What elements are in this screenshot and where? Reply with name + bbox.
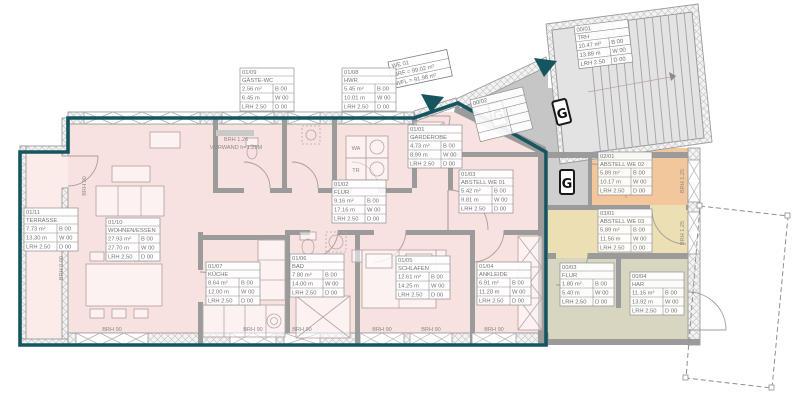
room-height: LRH 2.50 <box>292 291 317 297</box>
room-area: 9.16 m² <box>334 199 354 205</box>
room-height: LRH 2.50 <box>26 245 51 251</box>
we01-area-tag: WE 01 NRF = 99.02 m² WFL = 91.98 m² <box>388 50 452 89</box>
room-name: ABSTELL WE 02 <box>600 162 644 168</box>
brh-label-east-2: BRH 1.25 <box>680 221 686 245</box>
floorplan-svg: G G G WE 01 NRF = 99.02 m² WFL = 91.98 m… <box>0 0 801 400</box>
room-table-trh: 00/01TRH10.47 m²B 0013.89 mW 00LRH 2.50D… <box>574 19 633 68</box>
room-height: LRH 2.50 <box>479 299 504 305</box>
room-height: LRH 2.50 <box>410 162 435 168</box>
room-floor-code: B 00 <box>512 281 524 287</box>
room-floor-code: B 00 <box>494 189 506 195</box>
room-floor-code: B 00 <box>275 87 287 93</box>
room-name: GÄSTE-WC <box>242 77 273 84</box>
room-floor-code: B 00 <box>325 273 337 279</box>
room-name: KÜCHE <box>208 271 228 278</box>
room-code: 01/10 <box>108 220 123 226</box>
brh-label-south-4: BRH 90 <box>372 327 392 333</box>
room-code: 01/02 <box>334 182 349 188</box>
room-wall-code: W 00 <box>367 208 381 214</box>
room-floor-code: B 00 <box>59 227 71 233</box>
room-wall-code: W 00 <box>431 284 445 290</box>
room-name: TERRASSE <box>26 218 57 224</box>
room-code: 00/03 <box>562 265 577 271</box>
wall-we03-service-a <box>548 253 556 259</box>
room-table-garderobe: 01/01GARDEROBE4.73 m²B 008.99 mW 00LRH 2… <box>408 125 462 168</box>
vorwand-label-1: BRH 1.26 <box>224 137 248 143</box>
room-wall-code: W 00 <box>325 282 339 288</box>
brh-label-south-1: BRH 90 <box>102 327 122 333</box>
room-ceiling-code: D 00 <box>377 105 389 111</box>
room-area: 27.93 m² <box>108 237 131 243</box>
wall-kitchen-bad <box>285 230 290 345</box>
room-area: 5.45 m² <box>344 87 364 93</box>
room-floor-code: B 00 <box>443 144 455 150</box>
room-area: 7.80 m² <box>292 273 312 279</box>
room-height: LRH 2.50 <box>242 105 267 111</box>
room-table-gaeste-wc: 01/09GÄSTE-WC2.56 m²B 006.45 mW 00LRH 2.… <box>240 68 294 111</box>
window-we03-east <box>688 212 700 254</box>
room-code: 00/04 <box>632 274 647 280</box>
room-area: 6.91 m² <box>479 281 499 287</box>
room-perimeter: 9.81 m <box>461 198 479 204</box>
room-floor-code: B 00 <box>377 87 389 93</box>
room-perimeter: 10.17 m <box>600 180 621 186</box>
room-height: LRH 2.50 <box>208 299 233 305</box>
room-table-ankleide: 01/04ANKLEIDE6.91 m²B 0011.20 mW 00LRH 2… <box>477 262 531 305</box>
room-area: 12.61 m² <box>398 275 421 281</box>
room-area: 4.73 m² <box>410 144 430 150</box>
wall-corridor-south-c <box>406 230 472 235</box>
room-ceiling-code: D 00 <box>443 162 455 168</box>
room-code: 02/01 <box>600 154 615 160</box>
room-table-har: 00/04HAR11.15 m²B 0013.92 mW 00LRH 2.50D… <box>630 272 684 315</box>
room-ceiling-code: D 00 <box>241 299 253 305</box>
room-ceiling-code: D 00 <box>633 246 645 252</box>
wall-du-hwr <box>332 118 337 188</box>
wall-wc-du <box>282 118 287 188</box>
room-wall-code: W 00 <box>633 180 647 186</box>
room-floor-code: B 00 <box>633 228 645 234</box>
room-wall-code: W 00 <box>512 290 526 296</box>
wall-schlafen-ankleide <box>470 230 475 345</box>
brh-label-south-3: BRH 90 <box>292 327 312 333</box>
room-code: 01/06 <box>292 256 307 262</box>
wall-flur-har <box>616 258 621 308</box>
room-ceiling-code: D 00 <box>141 255 153 261</box>
room-code: 01/07 <box>208 264 223 270</box>
room-area: 8.64 m² <box>208 281 228 287</box>
window-we02-east <box>688 160 700 202</box>
room-floor-code: B 00 <box>241 281 253 287</box>
room-ceiling-code: D 00 <box>633 189 645 195</box>
room-area: 2.56 m² <box>242 87 262 93</box>
room-name: ABSTELL WE 03 <box>600 219 644 225</box>
room-table-flur-00-03: 00/03FLUR1.80 m²B 005.40 mW 00LRH 2.50D … <box>560 263 614 306</box>
room-area: 1.80 m² <box>562 282 582 288</box>
room-table-schlafen: 01/05SCHLAFEN12.61 m²B 0014.25 mW 00LRH … <box>396 256 450 299</box>
room-table-abstell-we02: 02/01ABSTELL WE 025.89 m²B 0010.17 mW 00… <box>598 152 652 195</box>
room-height: LRH 2.50 <box>398 293 423 299</box>
room-ceiling-code: D 00 <box>431 293 443 299</box>
room-table-kueche: 01/07KÜCHE8.64 m²B 0012.00 mW 00LRH 2.50… <box>206 262 260 305</box>
wall-meterroom-we02 <box>588 158 592 205</box>
room-area: 5.42 m² <box>461 189 481 195</box>
room-area: 11.15 m² <box>632 291 655 297</box>
room-table-terrasse: 01/11TERRASSE7.73 m²B 0013.30 mW 00LRH 2… <box>24 208 78 251</box>
room-height: LRH 2.50 <box>632 309 657 315</box>
room-ceiling-code: D 00 <box>275 105 287 111</box>
room-perimeter: 17.16 m <box>334 208 355 214</box>
room-wall-code: W 00 <box>595 291 609 297</box>
room-table-wohnen-essen: 01/10WOHNEN/ESSEN27.93 m²B 0027.70 mW 00… <box>106 218 160 261</box>
room-ceiling-code: D 00 <box>665 309 677 315</box>
room-table-abstell-we01: 01/03ABSTELL WE 015.42 m²B 009.81 mW 00L… <box>459 170 513 213</box>
room-floor-code: B 00 <box>633 171 645 177</box>
room-wall-code: W 00 <box>59 236 73 242</box>
room-code: 01/03 <box>461 172 476 178</box>
room-perimeter: 6.45 m <box>242 96 260 102</box>
room-floor-code: B 00 <box>141 237 153 243</box>
room-code: 01/08 <box>344 70 359 76</box>
room-name: ABSTELL WE 01 <box>461 180 505 186</box>
wall-living-wc <box>213 118 218 190</box>
room-ceiling-code: D 00 <box>494 207 506 213</box>
room-table-flur-we01: 01/02FLUR9.16 m²B 0017.16 mW 00LRH 2.50D… <box>332 180 386 223</box>
room-area: 5.89 m² <box>600 228 620 234</box>
room-perimeter: 13.92 m <box>632 300 653 306</box>
room-area: 5.89 m² <box>600 171 620 177</box>
room-table-hwr: 01/08HWR5.45 m²B 0010.01 mW 00LRH 2.50D … <box>342 68 396 111</box>
room-perimeter: 27.70 m <box>108 246 129 252</box>
room-table-bad: 01/06BAD7.80 m²B 0014.00 mW 00LRH 2.50D … <box>290 254 344 297</box>
room-wall-code: W 00 <box>377 96 391 102</box>
room-ceiling-code: D 00 <box>512 299 524 305</box>
brh-label-south-2: BRH 90 <box>243 327 263 333</box>
wall-corridor-north-a <box>213 188 244 193</box>
room-name: BAD <box>292 264 304 270</box>
coffee-table <box>112 166 150 182</box>
room-floor-code: B 00 <box>431 275 443 281</box>
brh-label-terrace: BRH 0.00 <box>59 256 65 280</box>
room-perimeter: 14.00 m <box>292 282 313 288</box>
brh-label-south-6: BRH 90 <box>484 327 504 333</box>
room-name: SCHLAFEN <box>398 266 429 272</box>
room-wall-code: W 00 <box>275 96 289 102</box>
room-wall-code: W 00 <box>241 290 255 296</box>
room-wall-code: W 00 <box>141 246 155 252</box>
room-ceiling-code: D 00 <box>59 245 71 251</box>
room-height: LRH 2.50 <box>461 207 486 213</box>
room-floor-code: B 00 <box>595 282 607 288</box>
room-code: 03/01 <box>600 211 615 217</box>
room-perimeter: 14.25 m <box>398 284 419 290</box>
room-code: 01/01 <box>410 127 425 133</box>
room-floor-code: B 00 <box>367 199 379 205</box>
room-table-abstell-we03: 03/01ABSTELL WE 035.89 m²B 0011.56 mW 00… <box>598 209 652 252</box>
room-perimeter: 11.20 m <box>479 290 500 296</box>
wall-bad-schlafen <box>355 230 360 345</box>
room-name: HAR <box>632 282 644 288</box>
brh-label-south-5: BRH 90 <box>421 327 441 333</box>
dryer-label: TR <box>352 168 359 174</box>
room-wall-code: W 00 <box>665 300 679 306</box>
room-ceiling-code: D 00 <box>367 217 379 223</box>
room-code: 01/05 <box>398 258 413 264</box>
wall-corridor-north-b <box>270 188 292 193</box>
room-name: FLUR <box>562 273 577 279</box>
room-perimeter: 8.99 m <box>410 153 428 159</box>
room-height: LRH 2.50 <box>600 189 625 195</box>
room-wall-code: W 00 <box>633 237 647 243</box>
room-code: 01/11 <box>26 210 40 216</box>
room-code: 01/04 <box>479 264 494 270</box>
room-perimeter: 5.40 m <box>562 291 580 297</box>
room-perimeter: 10.01 m <box>344 96 365 102</box>
room-height: LRH 2.50 <box>108 255 133 261</box>
room-perimeter: 13.30 m <box>26 236 47 242</box>
room-name: WOHNEN/ESSEN <box>108 228 156 234</box>
wall-service-south <box>548 339 700 345</box>
wall-we03-service-b <box>588 253 688 259</box>
room-perimeter: 11.56 m <box>600 237 621 243</box>
wall-living-kitchen-b <box>198 302 203 345</box>
brh-label-west: BRH 90 <box>82 176 88 196</box>
room-height: LRH 2.50 <box>334 217 359 223</box>
room-floor-code: B 00 <box>665 291 677 297</box>
wall-corridor-south-d <box>504 230 540 235</box>
wall-we02-we03-b <box>686 205 688 210</box>
vorwand-wall <box>216 130 254 136</box>
room-wall-code: W 00 <box>494 198 508 204</box>
room-height: LRH 2.50 <box>600 246 625 252</box>
gas-letter: G <box>562 177 573 192</box>
floorplan-page: G G G WE 01 NRF = 99.02 m² WFL = 91.98 m… <box>0 0 801 400</box>
room-name: HWR <box>344 78 358 84</box>
room-name: FLUR <box>334 190 349 196</box>
room-ceiling-code: D 00 <box>595 300 607 306</box>
room-wall-code: W 00 <box>443 153 457 159</box>
room-name: GARDEROBE <box>410 135 447 141</box>
vorwand-label-2: VORWAND h=1.25M <box>210 145 263 151</box>
room-height: LRH 2.50 <box>562 300 587 306</box>
tv-board <box>150 132 180 148</box>
room-perimeter: 12.00 m <box>208 290 229 296</box>
washer-label: WA <box>352 146 361 152</box>
sofa <box>96 186 164 216</box>
room-area: 7.73 m² <box>26 227 46 233</box>
wall-kitchen-north <box>198 235 285 240</box>
room-name: ANKLEIDE <box>479 272 508 278</box>
room-height: LRH 2.50 <box>344 105 369 111</box>
room-code: 01/09 <box>242 70 257 76</box>
brh-label-east-1: BRH 1.25 <box>680 169 686 193</box>
room-ceiling-code: D 00 <box>325 291 337 297</box>
gas-symbol-3: G <box>560 170 574 194</box>
